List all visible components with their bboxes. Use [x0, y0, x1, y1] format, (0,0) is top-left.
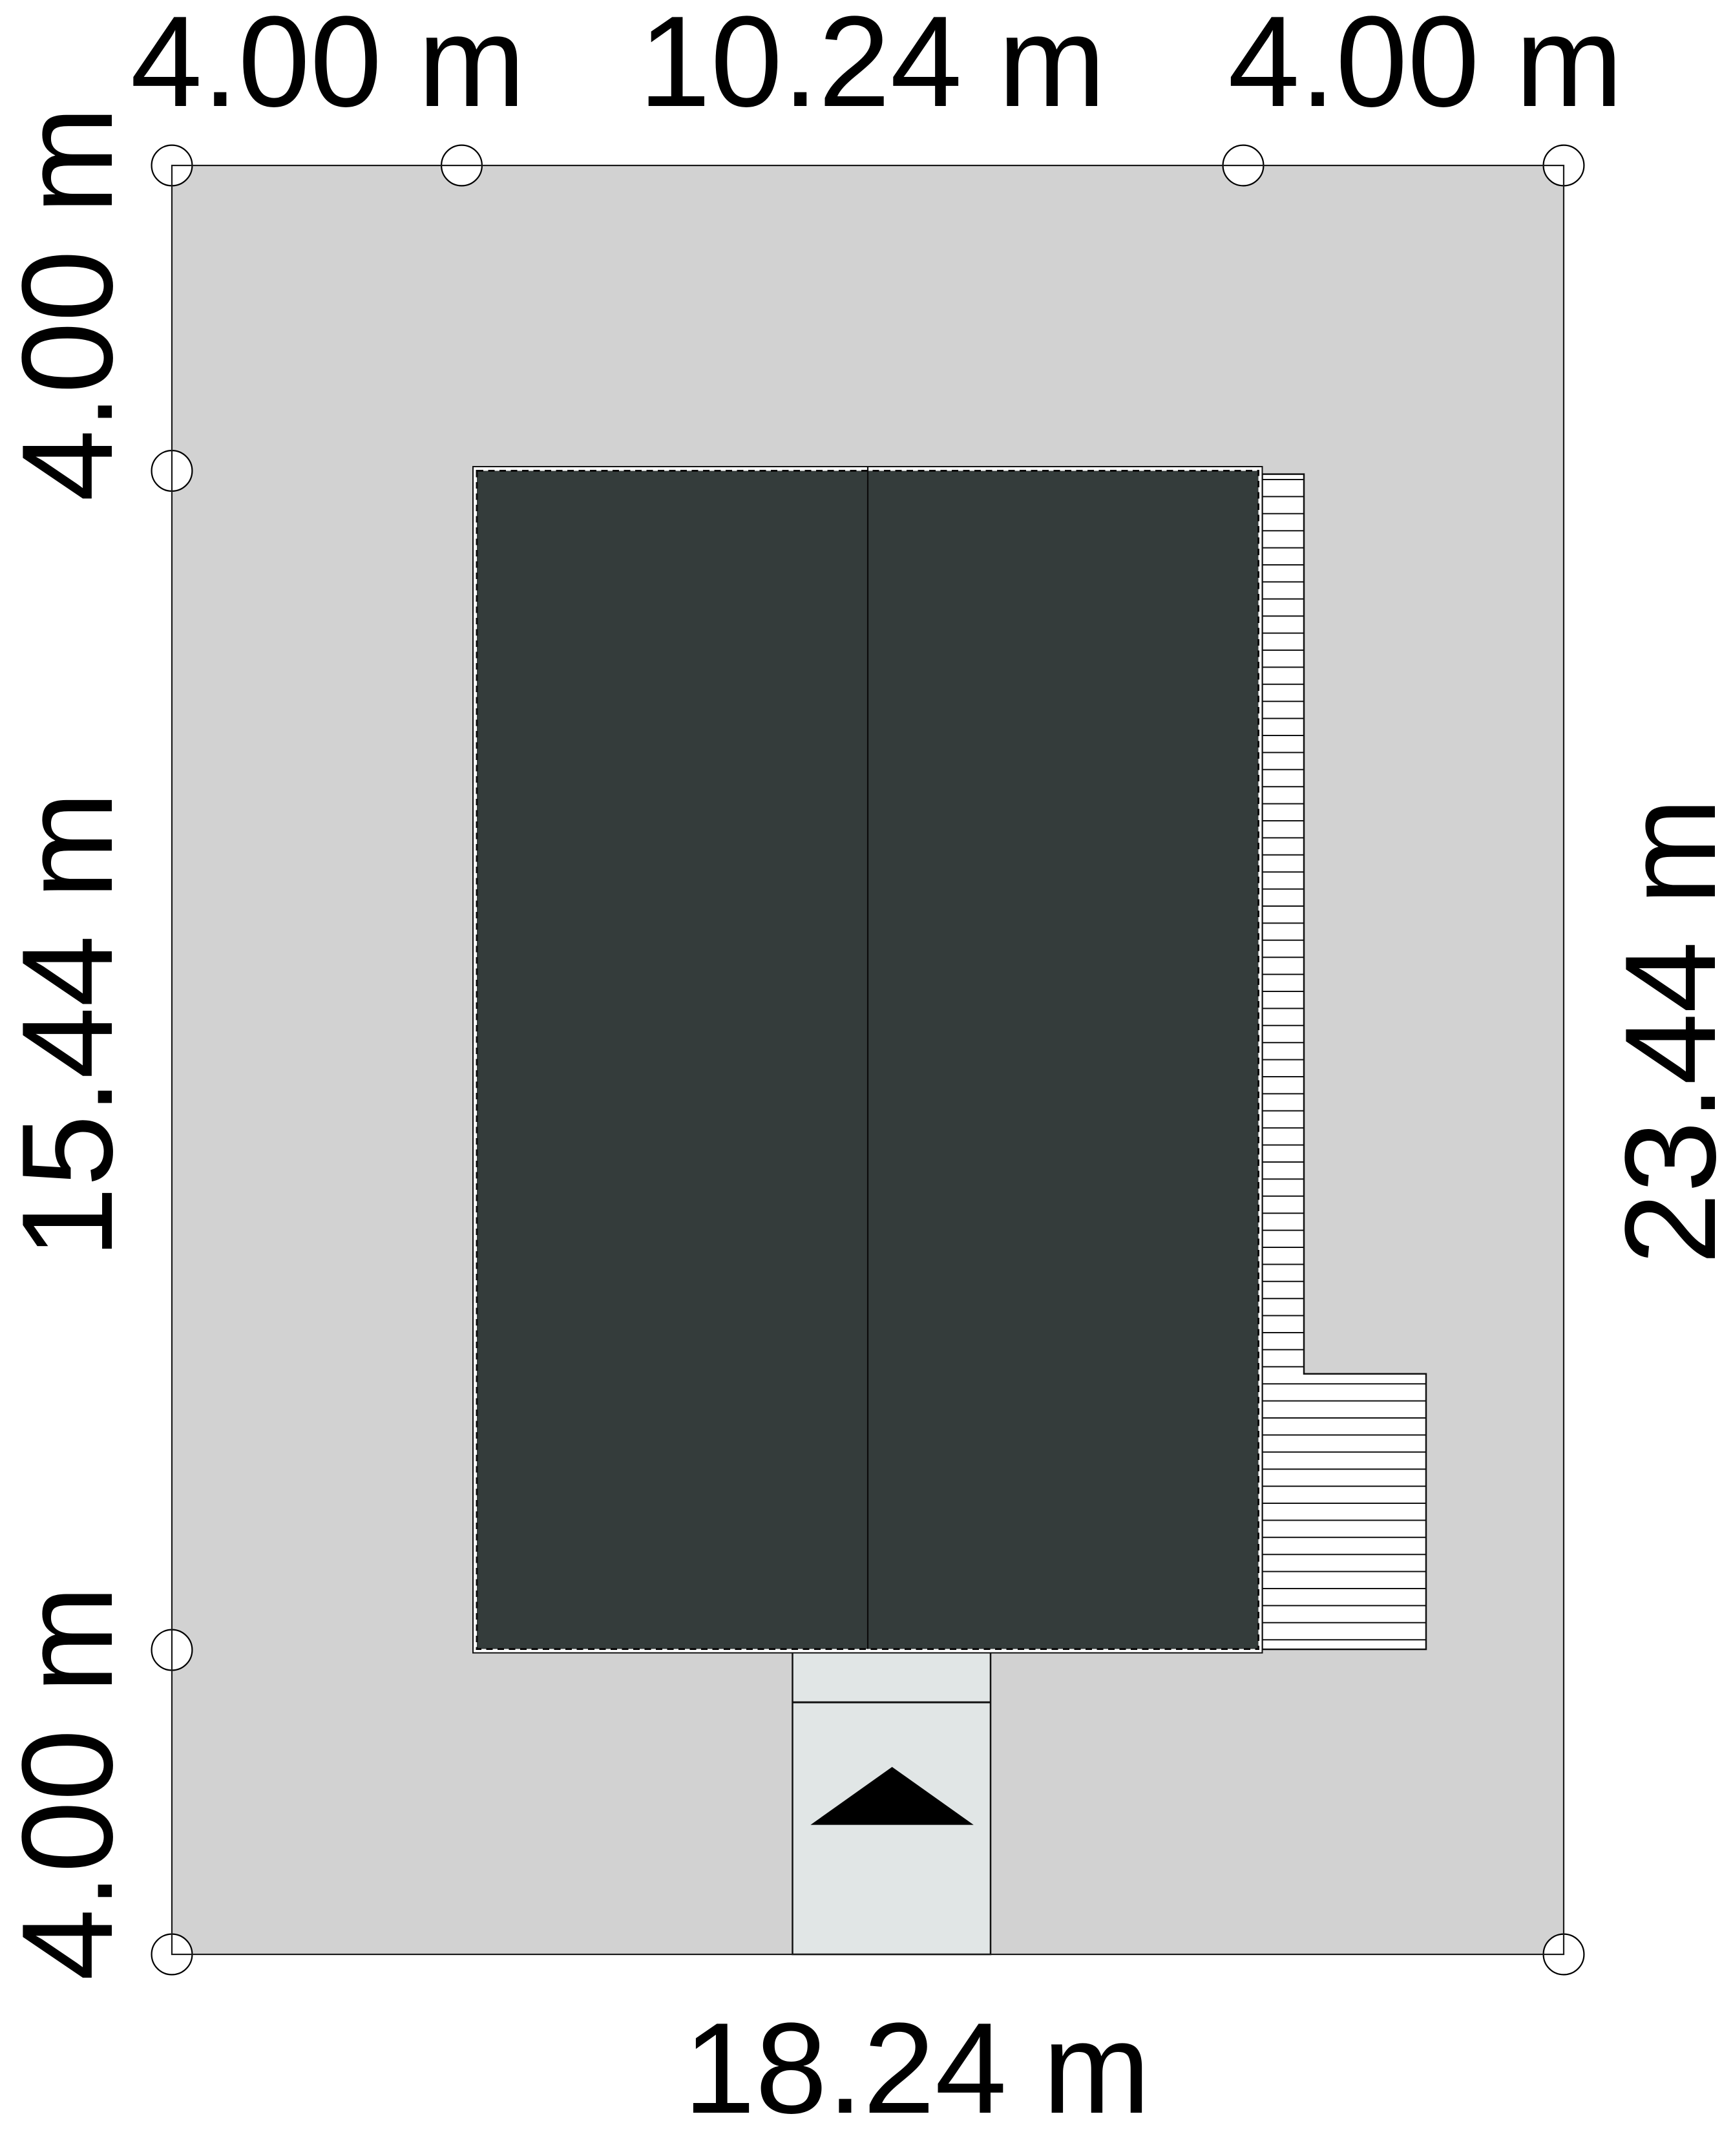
svg-text:4.00 m: 4.00 m: [0, 1585, 140, 1980]
svg-text:18.24 m: 18.24 m: [684, 1996, 1151, 2140]
svg-text:15.44 m: 15.44 m: [0, 792, 140, 1259]
svg-text:10.24 m: 10.24 m: [638, 0, 1106, 134]
svg-text:23.44 m: 23.44 m: [1599, 798, 1722, 1265]
svg-text:4.00 m: 4.00 m: [1228, 0, 1622, 134]
svg-text:4.00 m: 4.00 m: [0, 107, 140, 502]
svg-text:4.00 m: 4.00 m: [131, 0, 525, 134]
